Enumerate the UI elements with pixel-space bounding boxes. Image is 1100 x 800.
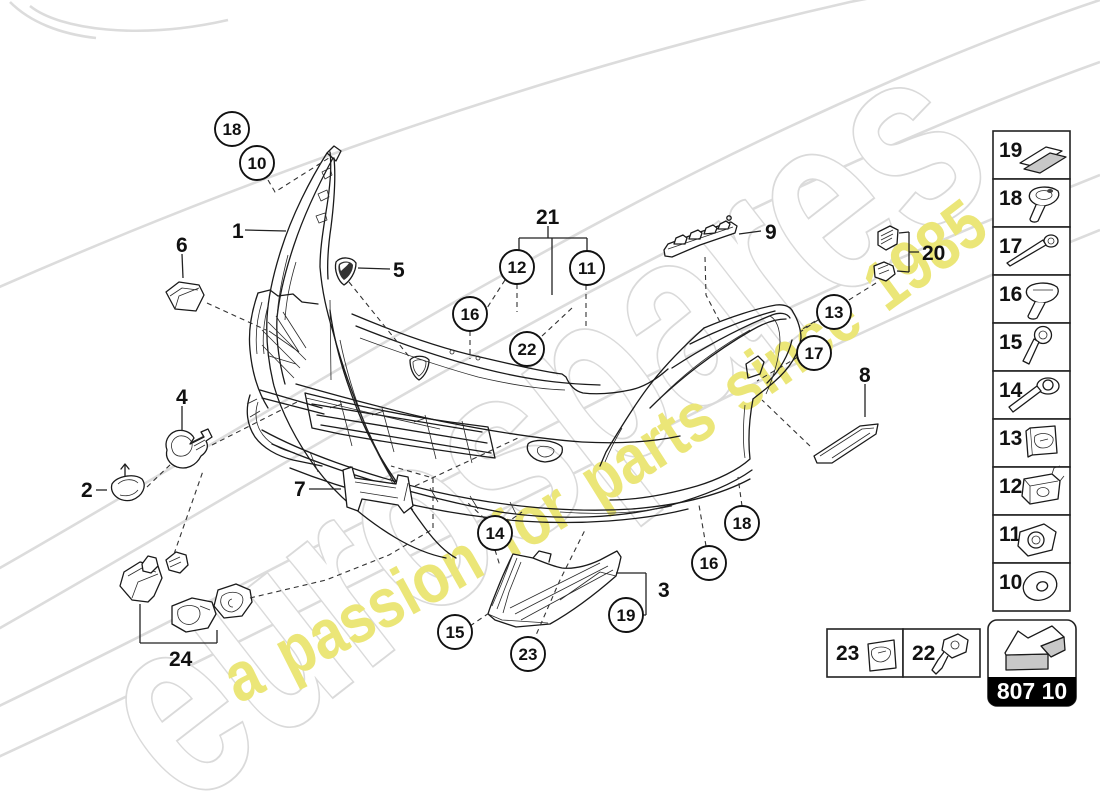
svg-text:12: 12: [508, 258, 527, 277]
svg-text:21: 21: [536, 206, 560, 229]
svg-text:11: 11: [578, 259, 596, 278]
svg-text:10: 10: [999, 571, 1022, 594]
svg-text:15: 15: [999, 331, 1023, 354]
svg-text:7: 7: [294, 478, 306, 501]
svg-text:18: 18: [999, 187, 1023, 210]
svg-text:20: 20: [922, 242, 945, 265]
svg-text:13: 13: [999, 427, 1022, 450]
svg-text:8: 8: [859, 364, 871, 387]
svg-text:15: 15: [446, 623, 465, 642]
svg-text:16: 16: [999, 283, 1022, 306]
svg-text:4: 4: [176, 386, 188, 409]
svg-text:23: 23: [836, 642, 859, 665]
svg-text:22: 22: [912, 642, 935, 665]
svg-text:807 10: 807 10: [997, 678, 1067, 704]
svg-text:17: 17: [805, 344, 824, 363]
svg-text:2: 2: [81, 479, 93, 502]
svg-text:14: 14: [999, 379, 1023, 402]
svg-text:17: 17: [999, 235, 1022, 258]
svg-text:18: 18: [223, 120, 242, 139]
svg-text:16: 16: [700, 554, 719, 573]
svg-text:23: 23: [519, 645, 538, 664]
svg-text:9: 9: [765, 221, 777, 244]
svg-text:19: 19: [617, 606, 636, 625]
svg-text:6: 6: [176, 234, 188, 257]
svg-text:13: 13: [825, 303, 844, 322]
svg-text:3: 3: [658, 579, 670, 602]
svg-text:1: 1: [232, 220, 244, 243]
svg-text:22: 22: [518, 340, 537, 359]
svg-text:24: 24: [169, 648, 193, 671]
svg-text:12: 12: [999, 475, 1022, 498]
svg-text:18: 18: [733, 514, 752, 533]
svg-text:10: 10: [248, 154, 267, 173]
svg-text:14: 14: [486, 524, 505, 543]
svg-text:5: 5: [393, 259, 405, 282]
svg-text:16: 16: [461, 305, 480, 324]
svg-text:19: 19: [999, 139, 1022, 162]
